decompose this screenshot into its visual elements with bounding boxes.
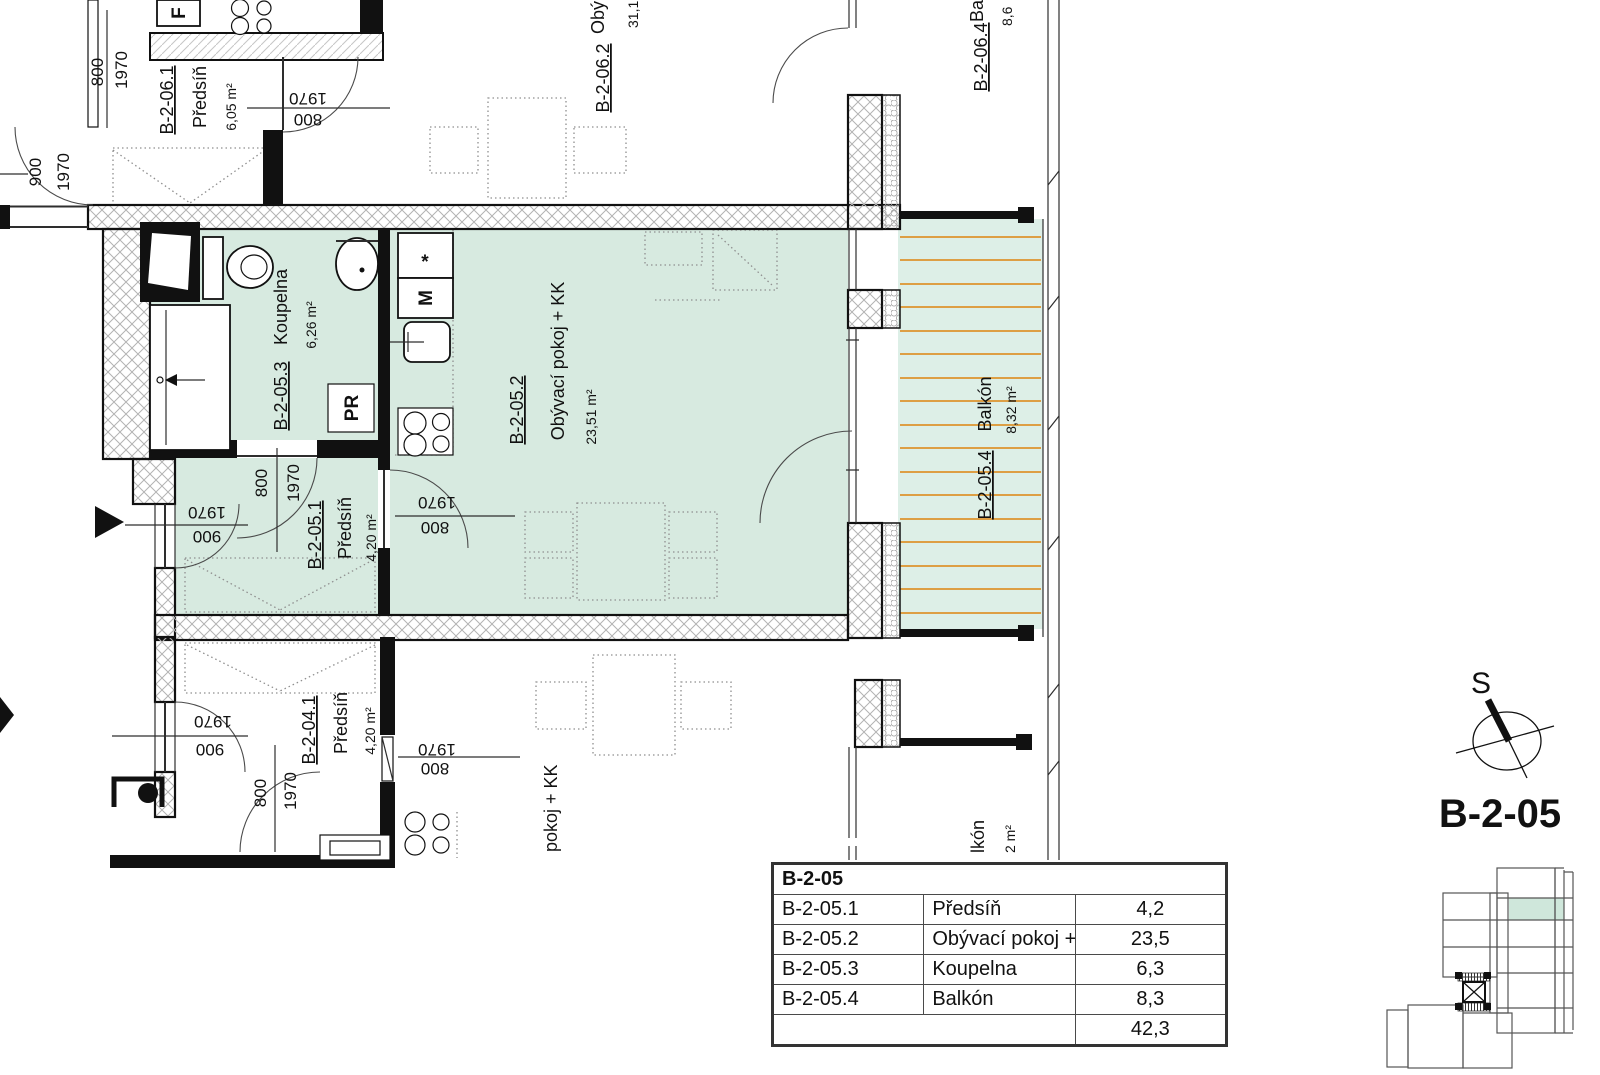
key-plan-highlight-unit — [1509, 898, 1564, 920]
b2062-balcony-door-arc — [773, 28, 848, 103]
dim-height: 1970 — [418, 740, 456, 759]
stove — [398, 408, 453, 456]
dim-width: 800 — [251, 779, 270, 807]
table-row: B-2-05.3 Koupelna 6,3 — [773, 955, 1227, 985]
room-name-partial: Obý — [588, 1, 608, 34]
row-area: 8,3 — [1075, 985, 1226, 1015]
row-area: 4,2 — [1075, 895, 1226, 925]
freezer-star-symbol: * — [421, 252, 429, 273]
dim-height: 1970 — [112, 51, 131, 89]
room-area-partial: 8,6 — [999, 6, 1015, 26]
dim-height: 1970 — [188, 503, 226, 522]
room-name: Balkón — [975, 376, 995, 431]
table-header: B-2-05 — [773, 864, 1227, 895]
dim-height: 1970 — [418, 493, 456, 512]
room-area: 6,26 m² — [303, 301, 319, 349]
total-spacer — [773, 1015, 1076, 1046]
appliance-m-label: M — [416, 290, 437, 306]
row-name: Balkón — [924, 985, 1075, 1015]
key-plan — [1387, 868, 1573, 1068]
total-area: 42,3 — [1075, 1015, 1226, 1046]
dim-width: 800 — [421, 518, 449, 537]
table-row: B-2-05.4 Balkón 8,3 — [773, 985, 1227, 1015]
entrance-arrows — [0, 506, 124, 733]
room-area-partial: 31,1 — [625, 1, 641, 28]
door-stop — [138, 783, 158, 803]
dim-width: 800 — [88, 58, 107, 86]
north-needle-icon — [1488, 700, 1509, 741]
room-area: 4,20 m² — [363, 514, 379, 562]
room-name: Předsíň — [331, 692, 351, 754]
room-code: B-2-04.1 — [299, 695, 319, 764]
north-label: S — [1471, 667, 1491, 700]
dim-width: 900 — [196, 740, 224, 759]
dim-width: 800 — [294, 110, 322, 129]
dim-height: 1970 — [289, 89, 327, 108]
table-total-row: 42,3 — [773, 1015, 1227, 1046]
room-area: 4,20 m² — [362, 707, 378, 755]
room-name-partial: Ba — [967, 0, 987, 22]
dim-height: 1970 — [281, 772, 300, 810]
room-code: B-2-06.1 — [157, 65, 177, 134]
room-area: 6,05 m² — [223, 83, 239, 131]
room-code: B-2-06.4 — [971, 22, 991, 91]
room-code: B-2-05.2 — [507, 375, 527, 444]
room-area: 8,32 m² — [1003, 386, 1019, 434]
row-area: 23,5 — [1075, 925, 1226, 955]
room-code: B-2-05.3 — [271, 361, 291, 430]
dim-width: 900 — [193, 527, 221, 546]
dim-height: 1970 — [54, 153, 73, 191]
row-code: B-2-05.2 — [773, 925, 924, 955]
room-code: B-2-06.2 — [593, 43, 613, 112]
room-area: 23,51 m² — [583, 389, 599, 445]
row-name: Obývací pokoj + KK — [924, 925, 1075, 955]
row-area: 6,3 — [1075, 955, 1226, 985]
room-area-partial: 2 m² — [1002, 825, 1018, 853]
dim-height: 1970 — [284, 464, 303, 502]
room-name: Předsíň — [190, 66, 210, 128]
compass: S — [1456, 667, 1554, 778]
row-name: Koupelna — [924, 955, 1075, 985]
room-name: Obývací pokoj + KK — [548, 282, 568, 441]
row-code: B-2-05.3 — [773, 955, 924, 985]
shower — [150, 305, 230, 450]
room-name-partial: lkón — [968, 820, 988, 853]
shaft-inner — [148, 233, 191, 290]
entrance-arrow-partial-icon — [0, 697, 14, 733]
sheet-title: B-2-05 — [1439, 792, 1561, 836]
room-obyvaci-pokoj-floor — [390, 228, 848, 615]
room-code: B-2-05.4 — [975, 450, 995, 519]
railing — [1048, 0, 1059, 860]
dim-width: 800 — [252, 469, 271, 497]
dim-height: 1970 — [194, 712, 232, 731]
floor-plan-sheet: * M F PR B-2-05.3 Koupelna 6,26 m² B-2-0… — [0, 0, 1600, 1075]
table-row: B-2-05.1 Předsíň 4,2 — [773, 895, 1227, 925]
stair-core — [1455, 972, 1491, 1011]
row-code: B-2-05.1 — [773, 895, 924, 925]
row-name: Předsíň — [924, 895, 1075, 925]
table-header-row: B-2-05 — [773, 864, 1227, 895]
area-table: B-2-05 B-2-05.1 Předsíň 4,2 B-2-05.2 Obý… — [771, 862, 1228, 1047]
entrance-arrow-icon — [95, 506, 124, 538]
room-name-partial: pokoj + KK — [541, 764, 561, 852]
table-row: B-2-05.2 Obývací pokoj + KK 23,5 — [773, 925, 1227, 955]
room-code: B-2-05.1 — [305, 500, 325, 569]
dim-width: 800 — [421, 759, 449, 778]
washer-pr-label: PR — [342, 395, 363, 422]
washbasin — [336, 238, 378, 290]
row-code: B-2-05.4 — [773, 985, 924, 1015]
room-name: Koupelna — [271, 268, 291, 345]
dim-width: 900 — [26, 158, 45, 186]
fridge-f-label: F — [169, 7, 190, 19]
room-name: Předsíň — [335, 497, 355, 559]
